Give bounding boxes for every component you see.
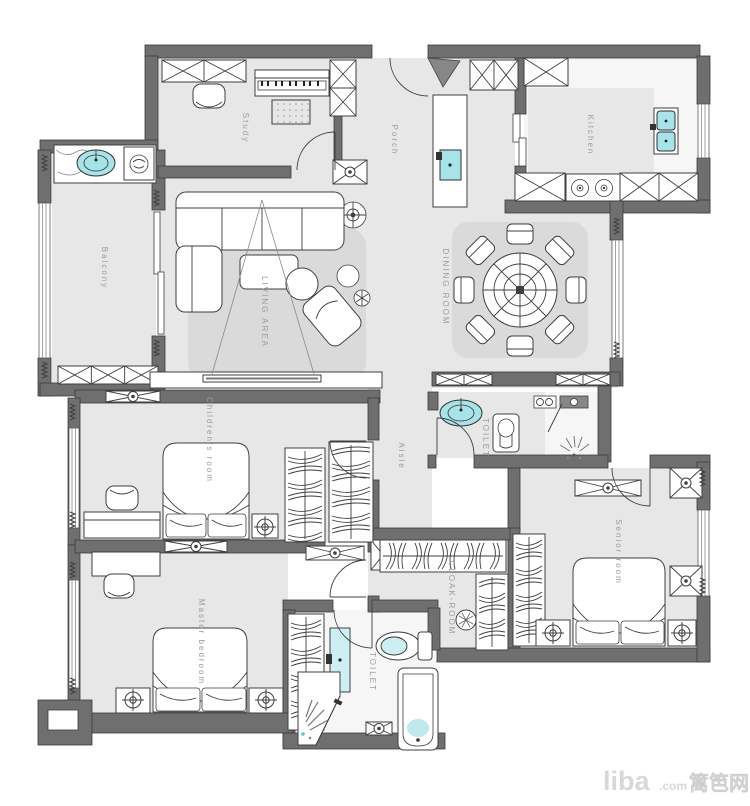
balcony-label: Balcony <box>100 247 109 289</box>
dining-label: DINING ROOM <box>441 248 450 325</box>
bathtub <box>398 668 438 750</box>
senior-label: Senior room <box>614 519 623 585</box>
study-label: Study <box>241 113 250 143</box>
childrens-window <box>69 428 79 528</box>
aisle-label: Aisle <box>397 442 406 469</box>
toilet-bottom-label: TOILET <box>368 652 377 692</box>
watermark-suffix: .com <box>659 779 687 793</box>
dining-chair <box>507 224 533 244</box>
childrens-label: Children's room <box>205 397 214 483</box>
toilet-fixture <box>376 632 432 660</box>
side-table <box>337 265 359 287</box>
master-window <box>69 580 79 688</box>
dining-window <box>612 240 623 358</box>
toilet-middle-label: TOILET <box>481 418 490 458</box>
dining-chair <box>507 336 533 356</box>
plant-icon <box>354 290 370 306</box>
floor-plan-page: Study Porch <box>0 0 750 806</box>
watermark-cjk: 篱笆网 <box>689 771 749 795</box>
laundry-counter <box>54 145 156 183</box>
stool <box>456 610 476 630</box>
kitchen-label: Kitchen <box>586 115 595 156</box>
washing-machine <box>124 147 154 180</box>
tv-wall <box>150 372 382 388</box>
console-table <box>433 95 467 207</box>
porch-label: Porch <box>390 125 399 156</box>
squat-toilet <box>493 414 519 452</box>
study-rug <box>272 100 310 124</box>
master-label: Master bedroom <box>197 599 206 685</box>
stove <box>566 174 620 201</box>
balcony-window <box>39 203 50 358</box>
kitchen-window <box>698 104 709 158</box>
kitchen-sink <box>650 108 678 154</box>
dining-chair <box>566 277 586 303</box>
watermark-brand: liba <box>603 766 650 796</box>
floor-plan-drawing: Study Porch <box>0 0 750 806</box>
dining-table <box>483 253 557 327</box>
master-door <box>330 560 366 597</box>
piano <box>255 70 329 96</box>
living-label: LIVING AREA <box>260 276 269 348</box>
cloak-label: CLOAK-ROOM <box>447 561 456 636</box>
dining-chair <box>454 277 474 303</box>
desk-chair <box>193 84 225 108</box>
watermark: liba .com 篱笆网 <box>603 766 749 796</box>
